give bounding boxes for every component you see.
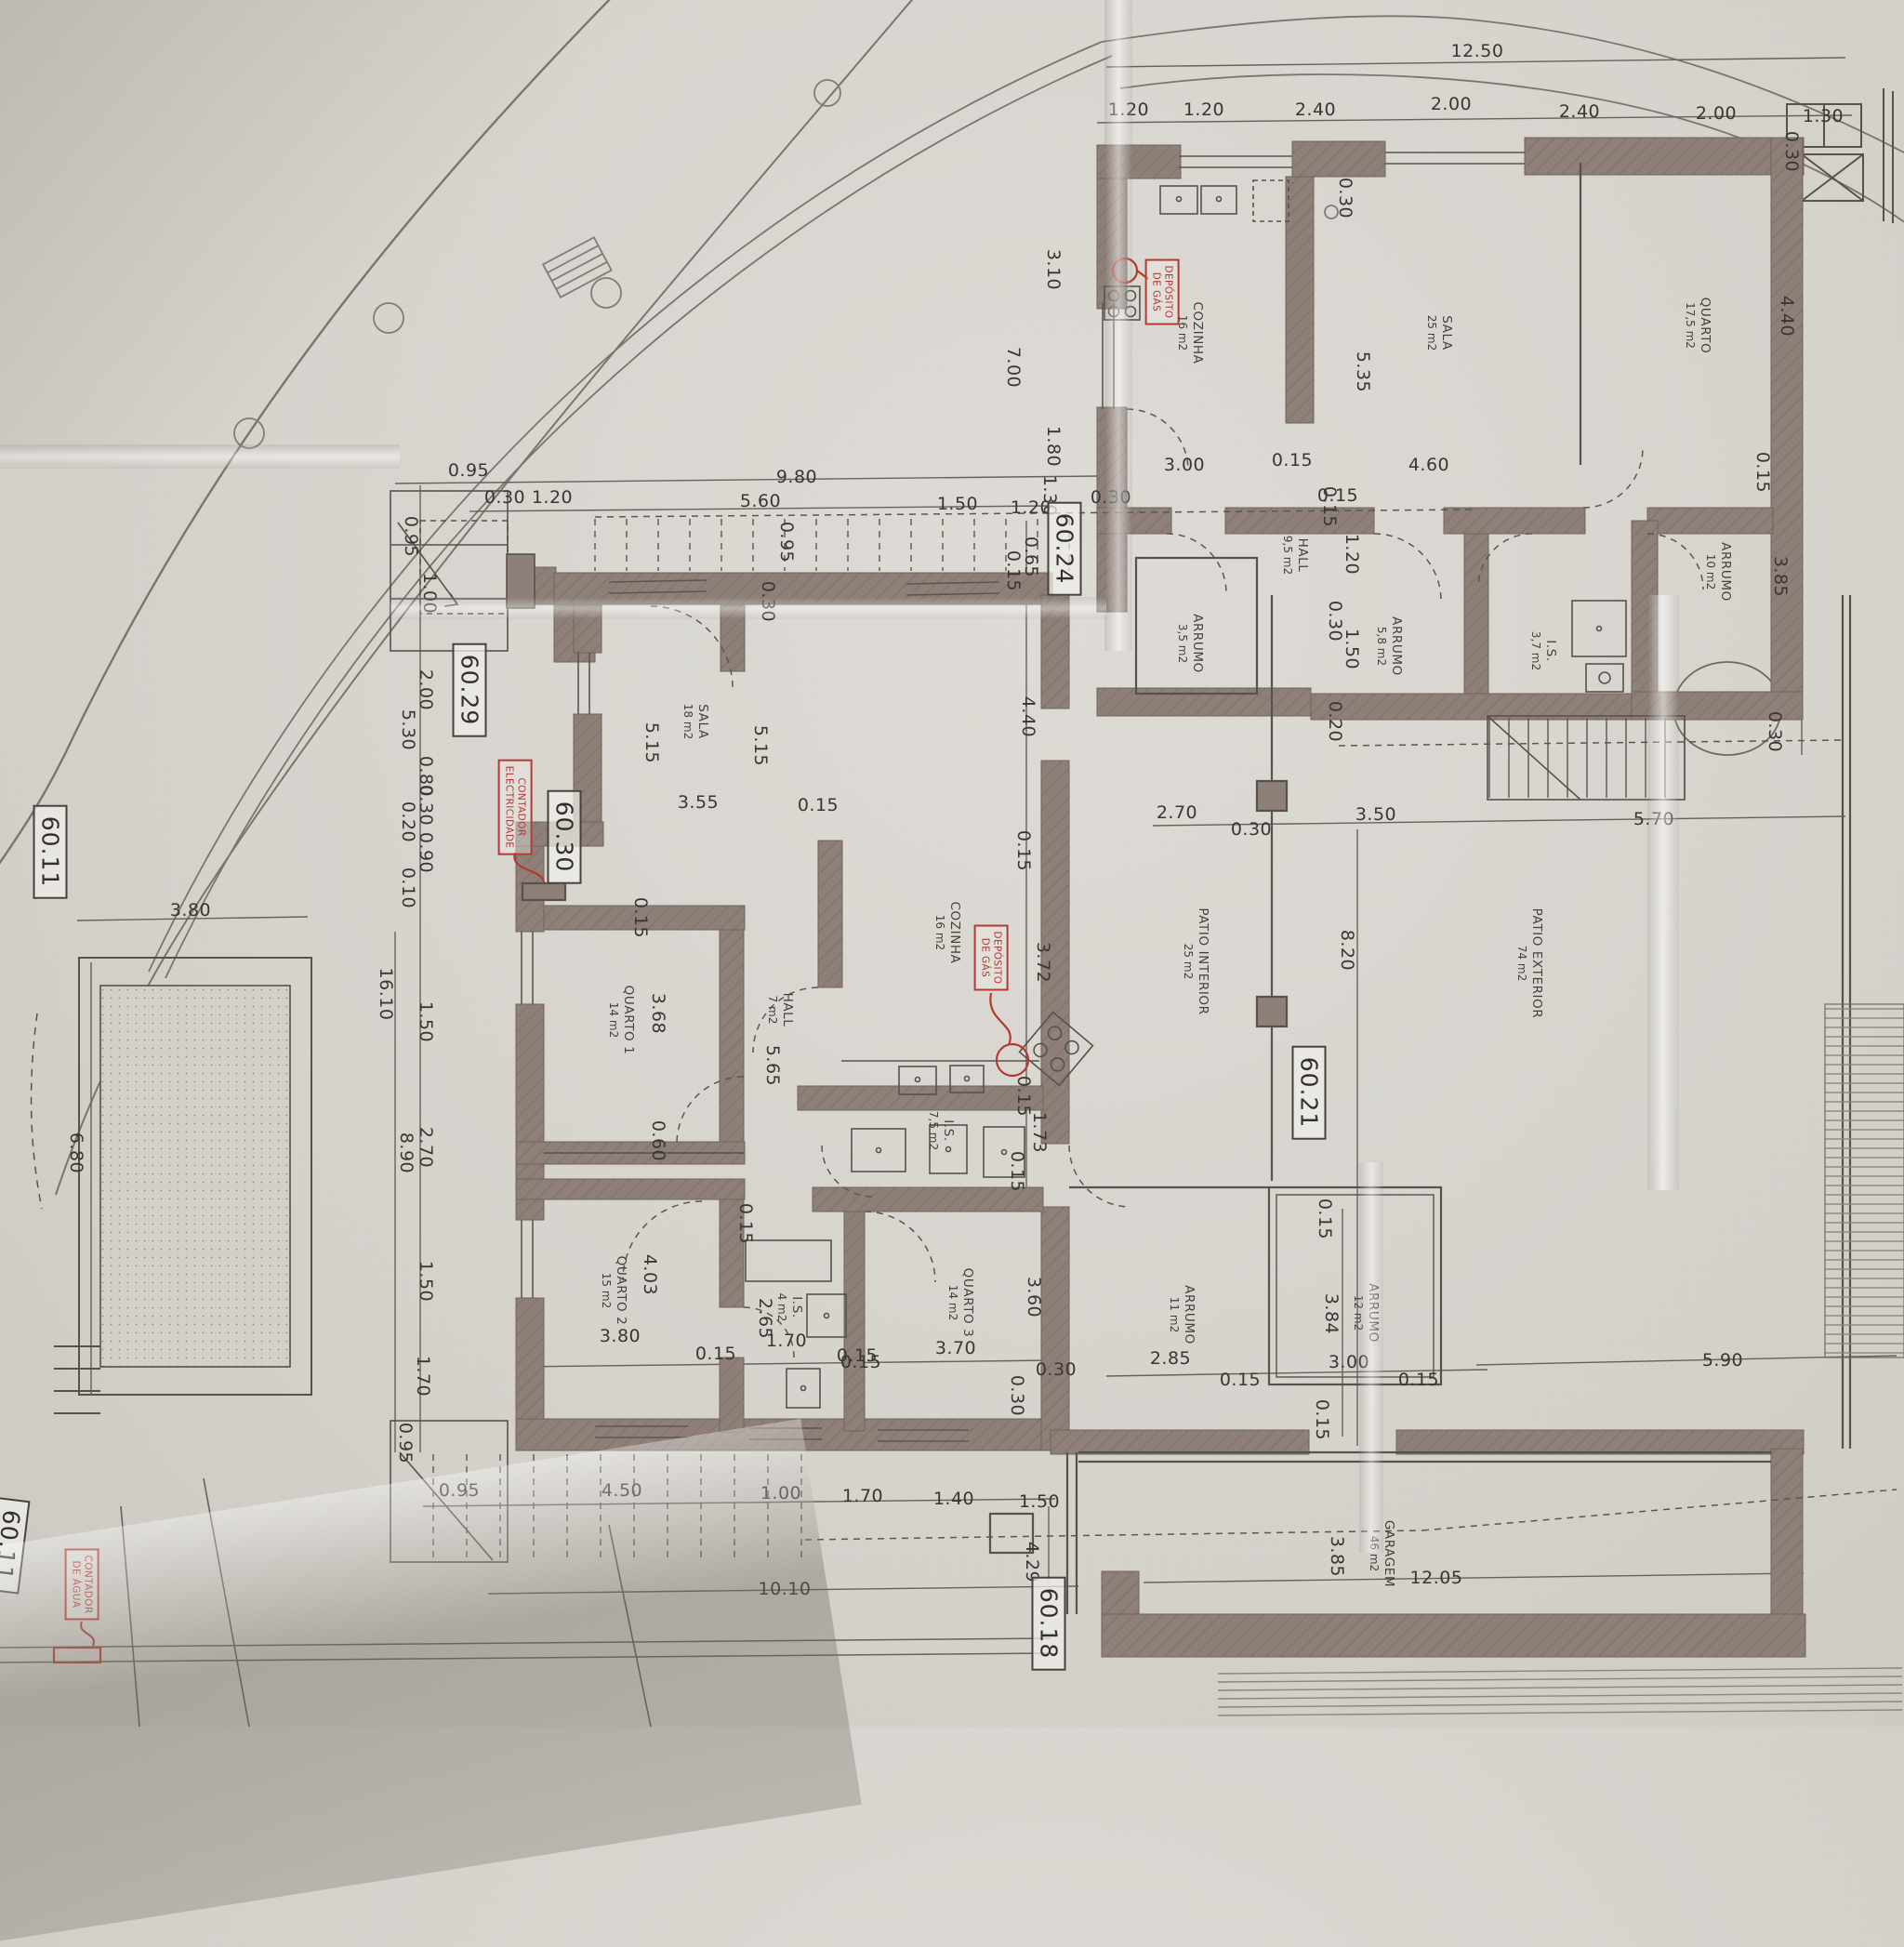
dimension-label: 1.50 [416, 1001, 436, 1042]
room-name: PATIO INTERIOR [1195, 907, 1210, 1014]
dimension-label: 3.85 [1770, 556, 1791, 597]
room-area: 25 m2 [1424, 315, 1438, 351]
dimension-label: 1.50 [1019, 1491, 1060, 1512]
red-annotation-line: CONTADOR [82, 1555, 94, 1613]
elevation-marker: 60.11 [33, 805, 68, 899]
dimension-label: 3.00 [1164, 455, 1205, 475]
dimension-label: 5.60 [740, 491, 781, 511]
dimension-label: 0.15 [630, 897, 651, 938]
dimension-label: 3.60 [1024, 1277, 1044, 1318]
dimension-label: 16.10 [376, 968, 396, 1021]
dimension-label: 1.70 [413, 1356, 433, 1397]
dimension-label: 0.15 [1312, 1399, 1332, 1440]
dimension-label: 8.90 [396, 1132, 416, 1173]
room-area: 3,7 m2 [1528, 631, 1542, 670]
dimension-label: 0.15 [1398, 1370, 1439, 1390]
labels-layer: COZINHA16 m2SALA25 m2QUARTO17,5 m2HALL9,… [0, 0, 1904, 1727]
dimension-label: 7.00 [1003, 347, 1024, 388]
room-name: PATIO EXTERIOR [1528, 908, 1544, 1019]
room-name: QUARTO 1 [620, 986, 636, 1055]
dimension-label: 0.15 [798, 795, 839, 815]
room-label: SALA18 m2 [681, 704, 710, 739]
room-name: ARRUMO [1717, 542, 1733, 602]
dimension-label: 0.95 [395, 1423, 416, 1464]
dimension-label: 2.85 [1150, 1348, 1191, 1369]
dimension-label: 3.80 [600, 1326, 641, 1346]
room-label: QUARTO 114 m2 [606, 986, 636, 1055]
dimension-label: 10.10 [759, 1579, 812, 1599]
room-label: COZINHA16 m2 [1175, 302, 1205, 364]
dimension-label: 2.70 [416, 1127, 436, 1168]
dimension-label: 4.03 [640, 1254, 660, 1295]
elevation-marker: 60.29 [453, 643, 487, 737]
dimension-label: 0.15 [840, 1352, 881, 1372]
dimension-label: 0.10 [398, 868, 418, 908]
dimension-label: 0.15 [1013, 1076, 1034, 1117]
dimension-label: 9.80 [776, 467, 817, 487]
dimension-label: 12.50 [1451, 41, 1504, 61]
room-area: 4 m2 [774, 1293, 788, 1322]
red-annotation-line: DEPÓSITO [991, 932, 1003, 985]
room-area: 74 m2 [1514, 908, 1528, 1019]
room-area: 7,5 m2 [926, 1111, 940, 1150]
dimension-label: 0.30 [758, 581, 778, 622]
dimension-label: 1.30 [1803, 106, 1844, 126]
dimension-label: 1.80 [1043, 426, 1064, 467]
dimension-label: 1.70 [842, 1486, 883, 1506]
elevation-marker: 60.18 [1032, 1577, 1066, 1671]
dimension-label: 12.05 [1410, 1568, 1463, 1588]
dimension-label: 3.72 [1033, 942, 1053, 983]
dimension-label: 2.40 [1295, 99, 1336, 120]
photographed-floor-plan: { "sheet": {"type": "architectural floor… [0, 0, 1904, 1727]
room-name: SALA [1438, 315, 1454, 351]
dimension-label: 0.15 [1007, 1151, 1027, 1192]
dimension-label: 3.68 [648, 993, 668, 1034]
room-label: QUARTO 215 m2 [599, 1256, 628, 1326]
room-label: PATIO INTERIOR25 m2 [1181, 907, 1210, 1014]
elevation-marker: 60.11 [0, 1497, 30, 1594]
dimension-label: 2.00 [1431, 94, 1472, 114]
dimension-label: 5.30 [398, 709, 418, 750]
room-area: 10 m2 [1703, 542, 1717, 602]
dimension-label: 3.84 [1321, 1293, 1342, 1334]
dimension-label: 1.20 [1183, 99, 1224, 120]
room-label: ARRUMO12 m2 [1351, 1283, 1381, 1343]
dimension-label: 0.15 [1315, 1199, 1335, 1239]
dimension-label: 1.20 [1342, 534, 1362, 575]
room-label: GARAGEM46 m2 [1367, 1520, 1396, 1587]
dimension-label: 4.60 [1408, 455, 1449, 475]
dimension-label: 2.65 [755, 1298, 775, 1339]
red-annotation: DEPÓSITODE GÁS [1144, 259, 1179, 325]
dimension-label: 2.40 [1559, 101, 1600, 122]
room-area: 7 m2 [765, 993, 779, 1027]
dimension-label: 1.50 [937, 494, 978, 514]
room-area: 18 m2 [681, 704, 694, 739]
room-name: ARRUMO [1388, 616, 1404, 676]
dimension-label: 0.95 [439, 1480, 480, 1501]
dimension-label: 0.30 [1335, 178, 1355, 219]
room-label: QUARTO17,5 m2 [1683, 298, 1712, 354]
room-label: SALA25 m2 [1424, 315, 1454, 351]
room-name: I.S. [940, 1111, 956, 1150]
dimension-label: 0.15 [735, 1203, 756, 1244]
room-name: I.S. [1542, 631, 1558, 670]
dimension-label: 2.70 [1157, 802, 1197, 823]
red-annotation: DEPÓSITODE GÁS [973, 925, 1008, 991]
dimension-label: 0.60 [648, 1120, 668, 1161]
dimension-label: 1.00 [760, 1483, 801, 1503]
dimension-label: 0.30 [1091, 487, 1131, 508]
dimension-label: 0.30 [484, 487, 525, 508]
dimension-label: 0.65 [1021, 536, 1041, 577]
room-name: QUARTO [1697, 298, 1712, 354]
room-name: HALL [1294, 536, 1310, 575]
dimension-label: 3.50 [1355, 804, 1396, 825]
room-area: 16 m2 [932, 902, 946, 964]
room-area: 12 m2 [1351, 1283, 1365, 1343]
dimension-label: 1.20 [532, 487, 573, 508]
room-name: GARAGEM [1381, 1520, 1396, 1587]
dimension-label: 0.15 [1003, 550, 1024, 591]
dimension-label: 0.15 [1013, 830, 1034, 871]
dimension-label: 3.85 [1327, 1536, 1347, 1577]
room-label: HALL7 m2 [765, 993, 795, 1027]
dimension-label: 5.35 [1353, 351, 1373, 392]
dimension-label: 0.95 [776, 522, 797, 563]
dimension-label: 4.40 [1018, 696, 1038, 737]
dimension-label: 1.73 [1029, 1112, 1050, 1153]
room-name: ARRUMO [1365, 1283, 1381, 1343]
room-label: I.S.3,7 m2 [1528, 631, 1558, 670]
red-annotation-line: DEPÓSITO [1162, 266, 1174, 319]
room-name: I.S. [788, 1293, 804, 1322]
room-name: ARRUMO [1181, 1285, 1197, 1344]
room-name: COZINHA [946, 902, 962, 964]
dimension-label: 0.95 [401, 516, 421, 557]
dimension-label: 6.80 [66, 1132, 86, 1173]
elevation-marker: 60.30 [548, 790, 582, 884]
room-name: SALA [694, 704, 710, 739]
room-area: 14 m2 [606, 986, 620, 1055]
elevation-marker: 60.24 [1048, 502, 1082, 596]
room-label: ARRUMO11 m2 [1167, 1285, 1197, 1344]
room-label: COZINHA16 m2 [932, 902, 962, 964]
dimension-label: 4.40 [1777, 296, 1797, 337]
dimension-label: 0.15 [1272, 450, 1313, 470]
room-label: I.S.7,5 m2 [926, 1111, 956, 1150]
room-label: QUARTO 314 m2 [945, 1268, 975, 1338]
red-annotation-line: CONTADOR [515, 766, 527, 849]
room-area: 11 m2 [1167, 1285, 1181, 1344]
room-label: ARRUMO10 m2 [1703, 542, 1733, 602]
dimension-label: 8.20 [1337, 930, 1357, 971]
room-area: 14 m2 [945, 1268, 959, 1338]
red-annotation-line: DE GÁS [1150, 266, 1162, 319]
dimension-label: 5.15 [750, 725, 771, 766]
dimension-label: 0.30 [1231, 819, 1272, 840]
dimension-label: 2.00 [1696, 103, 1737, 124]
room-label: ARRUMO3,5 m2 [1175, 614, 1205, 673]
dimension-label: 1.50 [1342, 629, 1362, 669]
dimension-label: 1.00 [419, 573, 440, 614]
red-annotation: CONTADORDE ÁGUA [64, 1548, 99, 1620]
room-label: PATIO EXTERIOR74 m2 [1514, 908, 1544, 1019]
room-area: 3,5 m2 [1175, 614, 1189, 673]
dimension-label: 3.70 [935, 1338, 976, 1358]
dimension-label: 0.30 [1765, 711, 1785, 752]
room-label: ARRUMO5,8 m2 [1374, 616, 1404, 676]
red-annotation-line: DE ÁGUA [70, 1555, 82, 1613]
room-name: COZINHA [1189, 302, 1205, 364]
plan-sheet: COZINHA16 m2SALA25 m2QUARTO17,5 m2HALL9,… [0, 0, 1904, 1727]
red-annotation-line: DE GÁS [979, 932, 991, 985]
dimension-label: 5.15 [641, 722, 662, 763]
room-name: HALL [779, 993, 795, 1027]
room-area: 17,5 m2 [1683, 298, 1697, 354]
dimension-label: 0.30 [1781, 131, 1802, 172]
dimension-label: 3.00 [1329, 1352, 1369, 1372]
red-annotation-line: ELECTRICIDADE [503, 766, 515, 849]
room-name: QUARTO 2 [613, 1256, 628, 1326]
room-name: ARRUMO [1189, 614, 1205, 673]
dimension-label: 3.55 [678, 792, 719, 813]
dimension-label: 0.30 [416, 785, 436, 826]
room-label: I.S.4 m2 [774, 1293, 804, 1322]
dimension-label: 0.15 [695, 1344, 736, 1364]
dimension-label: 2.00 [416, 669, 436, 710]
dimension-label: 0.15 [1319, 486, 1340, 527]
room-name: QUARTO 3 [959, 1268, 975, 1338]
dimension-label: 0.20 [1325, 701, 1345, 742]
dimension-label: 0.95 [448, 460, 489, 481]
dimension-label: 1.20 [1108, 99, 1149, 120]
dimension-label: 0.90 [416, 832, 436, 873]
dimension-label: 0.30 [1007, 1375, 1027, 1416]
dimension-label: 0.15 [1220, 1370, 1261, 1390]
room-area: 25 m2 [1181, 907, 1195, 1014]
elevation-marker: 60.21 [1292, 1046, 1327, 1140]
dimension-label: 3.10 [1043, 249, 1064, 290]
dimension-label: 5.65 [762, 1045, 783, 1086]
room-area: 9,5 m2 [1280, 536, 1294, 575]
dimension-label: 3.80 [170, 900, 211, 921]
dimension-label: 0.15 [1752, 452, 1773, 493]
room-area: 46 m2 [1367, 1520, 1381, 1587]
room-area: 5,8 m2 [1374, 616, 1388, 676]
dimension-label: 1.50 [416, 1261, 436, 1302]
dimension-label: 4.50 [602, 1480, 642, 1501]
red-annotation: CONTADORELECTRICIDADE [497, 760, 532, 855]
dimension-label: 5.70 [1633, 809, 1674, 829]
room-area: 15 m2 [599, 1256, 613, 1326]
room-label: HALL9,5 m2 [1280, 536, 1310, 575]
dimension-label: 1.40 [933, 1489, 974, 1509]
dimension-label: 5.90 [1702, 1350, 1743, 1371]
dimension-label: 0.30 [1036, 1359, 1077, 1380]
